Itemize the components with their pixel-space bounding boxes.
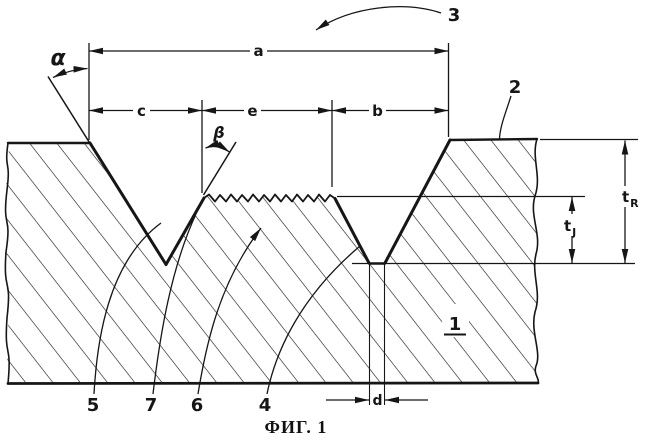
dim-label-a: a — [253, 42, 263, 60]
dim-label-d: d — [372, 393, 382, 409]
ref-label-4: 4 — [259, 395, 272, 416]
t-r-base: t — [622, 188, 629, 206]
ref-label-2: 2 — [509, 77, 522, 98]
dim-label-e: e — [247, 102, 257, 120]
ref-label-6: 6 — [191, 395, 204, 416]
beta-angle-arc — [206, 146, 230, 152]
workpiece-cross-section — [5, 139, 538, 384]
ref-label-3: 3 — [448, 5, 461, 26]
top-surface-right — [450, 139, 537, 140]
leader-ref3 — [316, 7, 441, 30]
patent-figure-page: a c e b d α β tR tJ 3 2 1 5 7 6 4 ФИГ. 1 — [0, 0, 645, 445]
angle-label-beta: β — [212, 123, 224, 142]
dim-label-c: c — [137, 102, 146, 120]
bottom-edge — [8, 383, 538, 384]
t-j-base: t — [564, 217, 571, 235]
dim-label-b: b — [372, 102, 383, 120]
ref-label-7: 7 — [145, 395, 158, 416]
t-r-subscript: R — [630, 197, 639, 210]
beta-slant-line — [204, 142, 237, 195]
patent-figure-drawing: a c e b d α β tR tJ 3 2 1 5 7 6 4 ФИГ. 1 — [0, 0, 645, 445]
ref-label-5: 5 — [87, 395, 100, 416]
angle-label-alpha: α — [50, 46, 66, 71]
alpha-slant-line — [48, 77, 91, 146]
leader-ref2 — [500, 96, 512, 139]
t-j-subscript: J — [571, 226, 576, 239]
ref-label-1: 1 — [449, 314, 462, 335]
figure-caption: ФИГ. 1 — [265, 417, 328, 437]
